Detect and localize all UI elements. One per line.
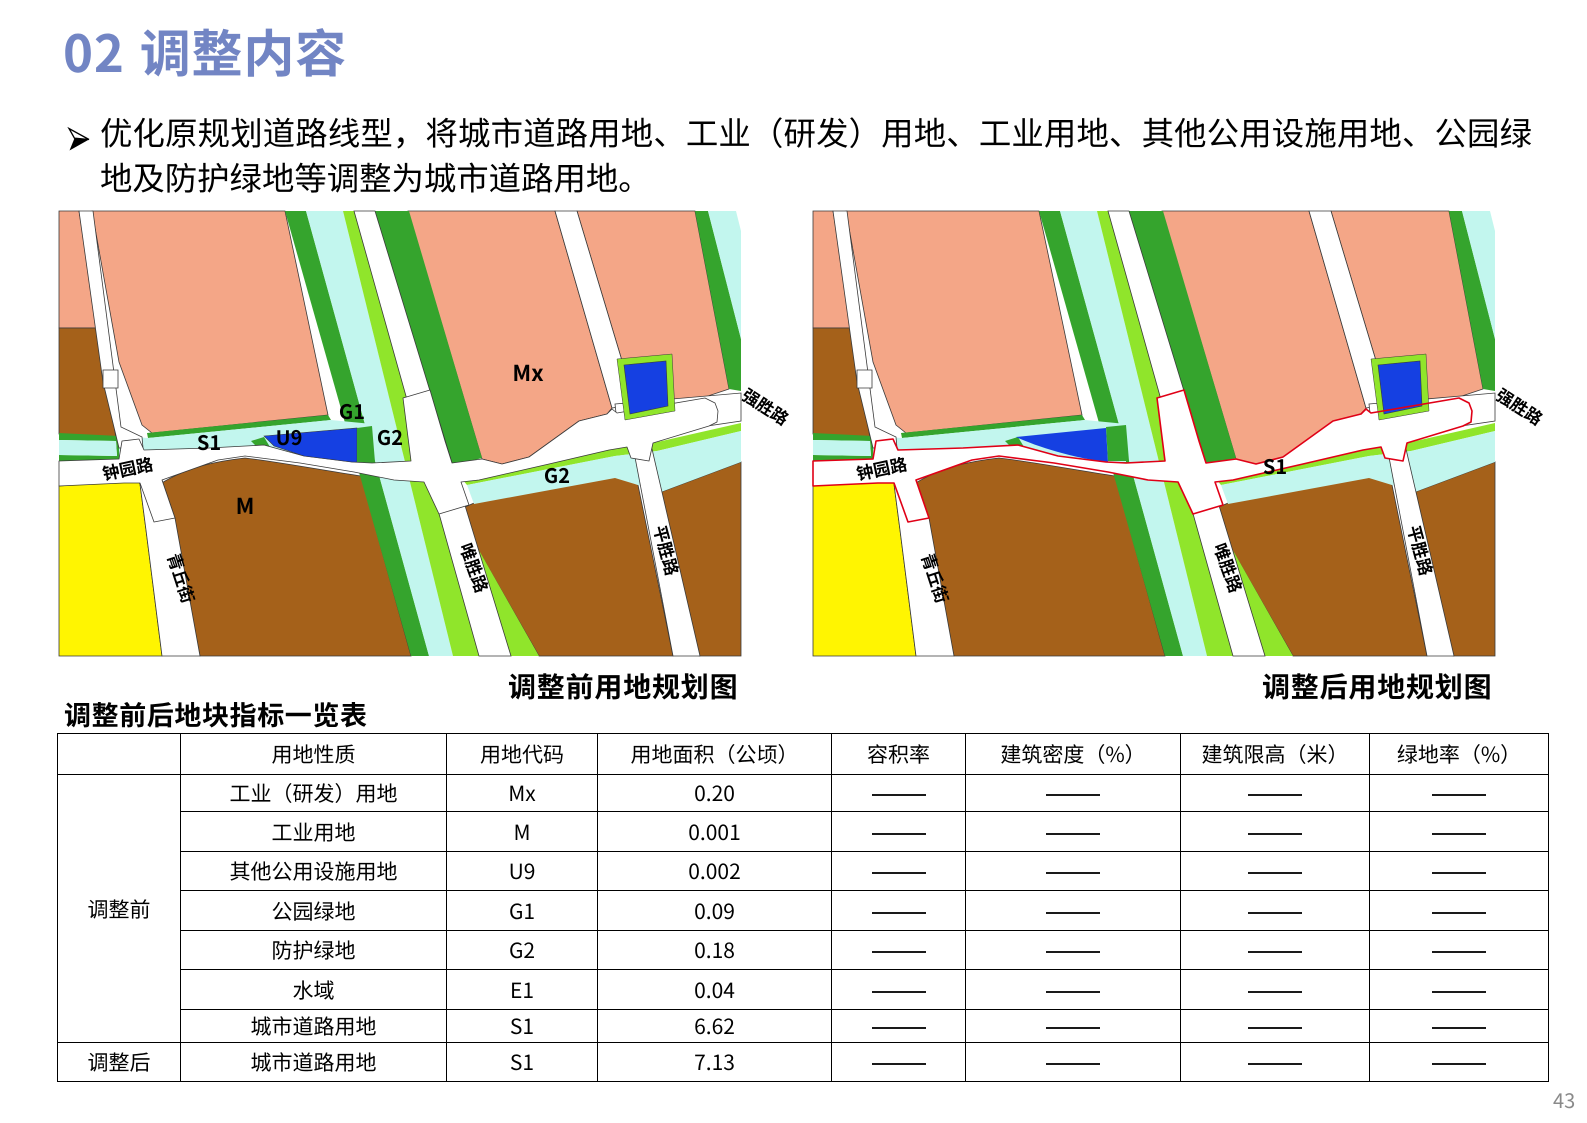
svg-text:G2: G2 bbox=[377, 422, 403, 451]
svg-text:S1: S1 bbox=[197, 427, 221, 456]
svg-text:强胜路: 强胜路 bbox=[1492, 381, 1548, 430]
svg-text:S1: S1 bbox=[1263, 451, 1287, 480]
svg-text:G1: G1 bbox=[339, 396, 365, 425]
svg-text:强胜路: 强胜路 bbox=[738, 381, 794, 430]
svg-text:Mx: Mx bbox=[512, 356, 543, 388]
svg-text:M: M bbox=[236, 489, 255, 521]
svg-text:U9: U9 bbox=[276, 422, 303, 451]
svg-text:G2: G2 bbox=[544, 460, 570, 489]
